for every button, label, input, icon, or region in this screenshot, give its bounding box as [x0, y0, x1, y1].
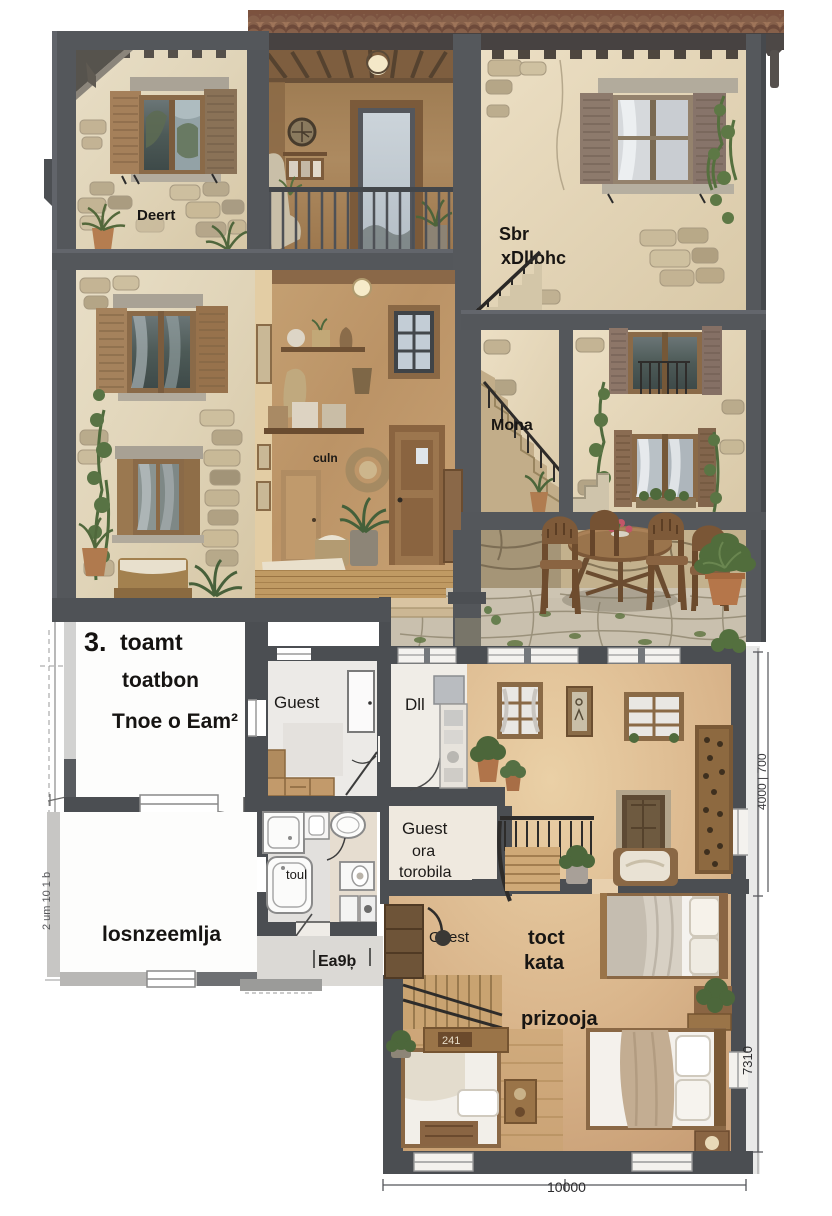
svg-text:Guest: Guest [274, 693, 320, 712]
svg-text:toatbon: toatbon [122, 669, 199, 692]
svg-text:Tnoe o Eam²: Tnoe o Eam² [112, 710, 238, 733]
svg-text:toct: toct [528, 927, 565, 949]
svg-text:241: 241 [442, 1035, 460, 1047]
svg-text:4000 | 700: 4000 | 700 [755, 753, 769, 810]
svg-text:Deert: Deert [137, 207, 175, 224]
svg-text:prizooja: prizooja [521, 1008, 599, 1030]
svg-text:losnzeemlja: losnzeemlja [102, 923, 221, 946]
svg-text:Sbr: Sbr [499, 224, 529, 244]
svg-text:Mona: Mona [491, 417, 533, 434]
svg-text:Guest: Guest [402, 819, 448, 838]
svg-text:torobila: torobila [399, 864, 452, 881]
svg-text:kata: kata [524, 952, 565, 974]
svg-text:ora: ora [412, 843, 435, 860]
svg-text:toamt: toamt [120, 629, 183, 655]
svg-text:3.: 3. [84, 627, 107, 657]
svg-text:culn: culn [313, 451, 338, 465]
svg-text:2 um 10 1 b: 2 um 10 1 b [41, 872, 53, 930]
svg-text:7310: 7310 [740, 1046, 755, 1075]
svg-text:toul: toul [286, 867, 307, 882]
svg-text:Dll: Dll [405, 695, 425, 714]
svg-text:10000: 10000 [547, 1179, 586, 1195]
svg-text:Ea9b̦: Ea9b̦ [318, 953, 356, 970]
